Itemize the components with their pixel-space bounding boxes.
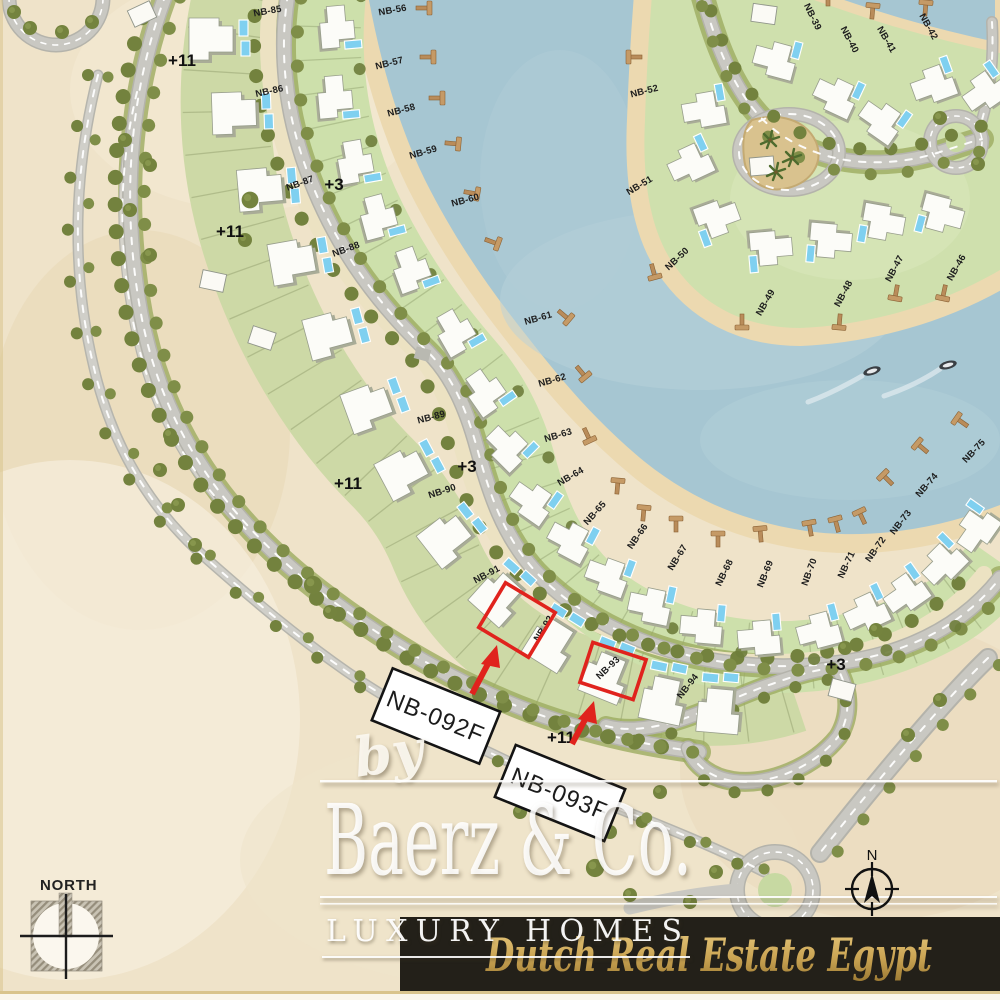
elevation-label: +11 <box>168 51 196 70</box>
elevation-label: +3 <box>324 175 343 194</box>
elevation-label: +11 <box>334 474 362 493</box>
north-label: NORTH <box>40 877 97 894</box>
elevation-label: +11 <box>216 222 244 241</box>
compass-rose-letter: N <box>867 847 878 864</box>
banner-text: Dutch Real Estate Egypt <box>485 928 932 982</box>
master-plan-page: NB-85NB-86NB-87NB-88NB-89NB-90NB-91NB-92… <box>0 0 1000 1000</box>
watermark-brand: Baerz & Co. <box>324 784 692 897</box>
elevation-label: +11 <box>547 728 575 747</box>
elevation-label: +3 <box>826 655 845 674</box>
watermark-by: by <box>350 716 431 790</box>
elevation-label: +3 <box>457 457 476 476</box>
master-plan-map: NB-85NB-86NB-87NB-88NB-89NB-90NB-91NB-92… <box>0 0 1000 1000</box>
